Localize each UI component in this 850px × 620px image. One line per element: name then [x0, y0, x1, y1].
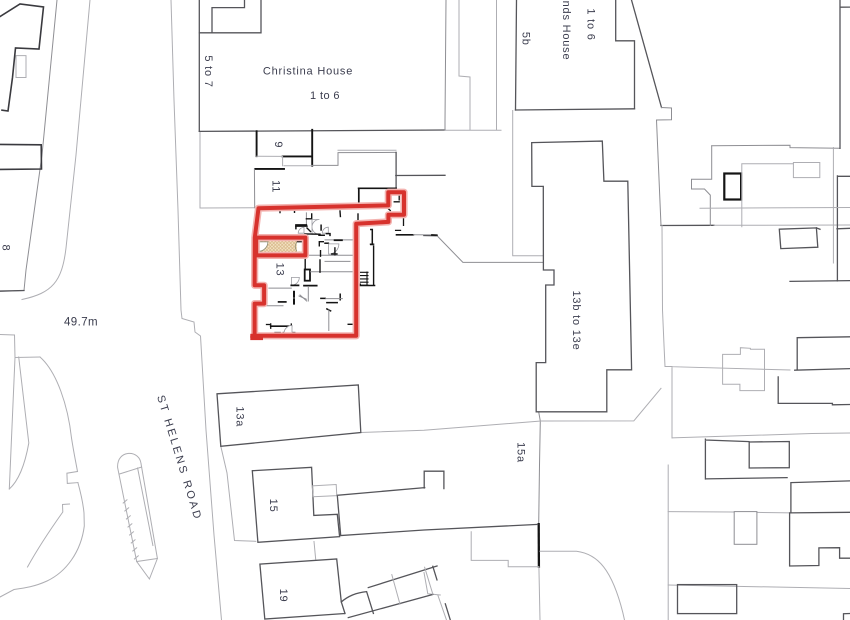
svg-text:13a: 13a — [233, 406, 245, 427]
svg-text:19: 19 — [277, 589, 289, 603]
svg-text:13: 13 — [274, 263, 286, 277]
svg-text:13b to 13e: 13b to 13e — [570, 291, 582, 351]
svg-text:15a: 15a — [514, 442, 526, 463]
svg-text:49.7m: 49.7m — [64, 317, 98, 329]
svg-text:9: 9 — [272, 141, 284, 148]
svg-text:Christina House: Christina House — [263, 66, 353, 78]
svg-text:5b: 5b — [520, 32, 532, 46]
svg-text:11: 11 — [269, 180, 281, 193]
svg-text:nds House: nds House — [560, 1, 572, 61]
svg-text:1 to 6: 1 to 6 — [585, 8, 597, 40]
svg-text:15: 15 — [267, 499, 279, 513]
svg-text:8: 8 — [0, 245, 12, 252]
svg-text:1 to 6: 1 to 6 — [310, 90, 340, 102]
svg-text:5 to 7: 5 to 7 — [202, 55, 214, 87]
